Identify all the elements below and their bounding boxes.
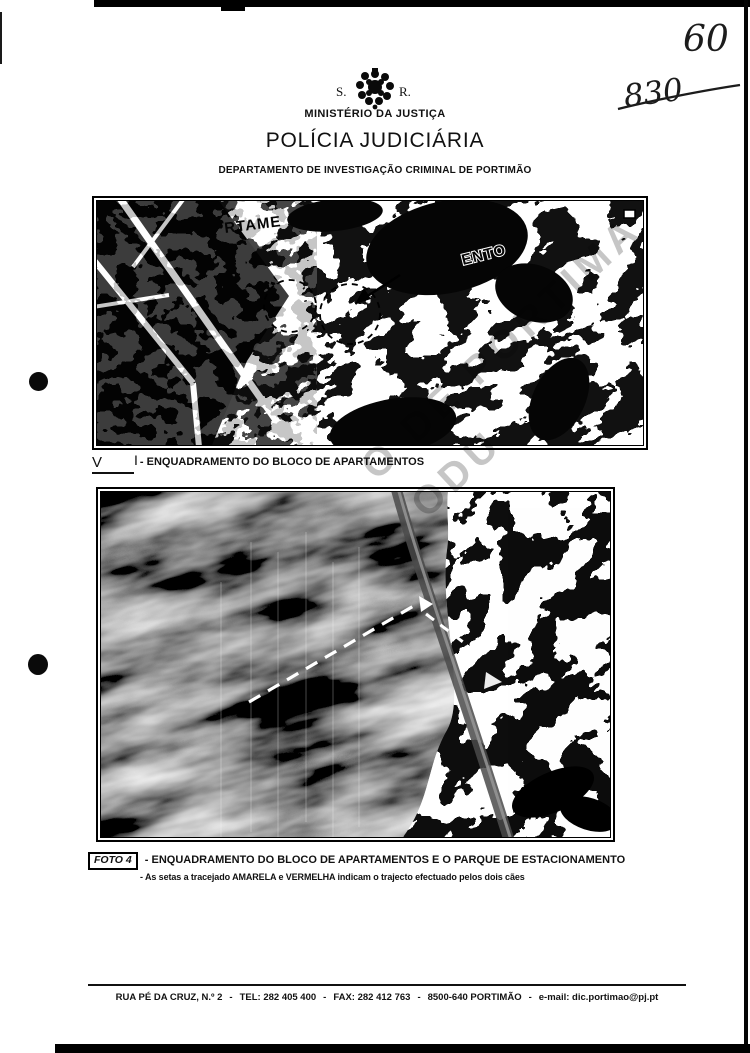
hole-punch-mark (29, 372, 48, 391)
footer-address: RUA PÉ DA CRUZ, N.º 2 (116, 992, 223, 1003)
hole-punch-mark (28, 654, 48, 675)
scanned-document-page: { "annotations": { "page_number": "60", … (0, 0, 750, 1053)
scan-artifact-tick (221, 7, 245, 11)
page-title: POLÍCIA JUDICIÁRIA (0, 129, 750, 153)
aerial-photo-2 (101, 492, 610, 837)
footer-email: e-mail: dic.portimao@pj.pt (539, 992, 659, 1003)
handwritten-page-number: 60 (683, 19, 729, 60)
header-initial-s: S. (336, 84, 346, 100)
coat-of-arms-icon (352, 66, 398, 112)
caption-letter-v: V (92, 454, 134, 474)
footer-tel: TEL: 282 405 400 (240, 992, 317, 1003)
footer-separator: - (229, 992, 232, 1003)
photo4-caption-line2: - As setas a tracejado AMARELA e VERMELH… (140, 871, 708, 884)
handwritten-annotations: 60 830 (588, 4, 750, 122)
scan-artifact-bottom-band (55, 1044, 750, 1053)
scan-artifact-right-edge (744, 0, 748, 1050)
photo4-tag: FOTO 4 (88, 852, 138, 870)
small-square-marker (624, 210, 635, 218)
caption-bar: I (134, 452, 138, 468)
photo1-frame: RTAME ENTO (92, 196, 648, 450)
footer-separator: - (529, 992, 532, 1003)
footer-separator: - (417, 992, 420, 1003)
footer-contact-line: RUA PÉ DA CRUZ, N.º 2-TEL: 282 405 400-F… (48, 992, 726, 1003)
photo4-caption-line1: - ENQUADRAMENTO DO BLOCO DE APARTAMENTOS… (145, 854, 625, 866)
department-subtitle: DEPARTAMENTO DE INVESTIGAÇÃO CRIMINAL DE… (0, 165, 750, 176)
footer-postal-city: 8500-640 PORTIMÃO (428, 992, 522, 1003)
aerial-photo-1: RTAME ENTO (97, 201, 643, 445)
handwritten-crossed-number: 830 (622, 72, 685, 115)
footer-rule (88, 984, 686, 986)
scan-artifact-left-edge (0, 12, 2, 64)
photo4-caption: FOTO 4 - ENQUADRAMENTO DO BLOCO DE APART… (88, 852, 708, 884)
road-junction-area (97, 201, 297, 445)
photo3-caption-text: - ENQUADRAMENTO DO BLOCO DE APARTAMENTOS (140, 456, 424, 468)
photo2-frame (96, 487, 615, 842)
photo3-caption: VI- ENQUADRAMENTO DO BLOCO DE APARTAMENT… (92, 452, 424, 472)
header-initial-r: R. (399, 84, 411, 100)
footer-separator: - (323, 992, 326, 1003)
footer-fax: FAX: 282 412 763 (333, 992, 410, 1003)
